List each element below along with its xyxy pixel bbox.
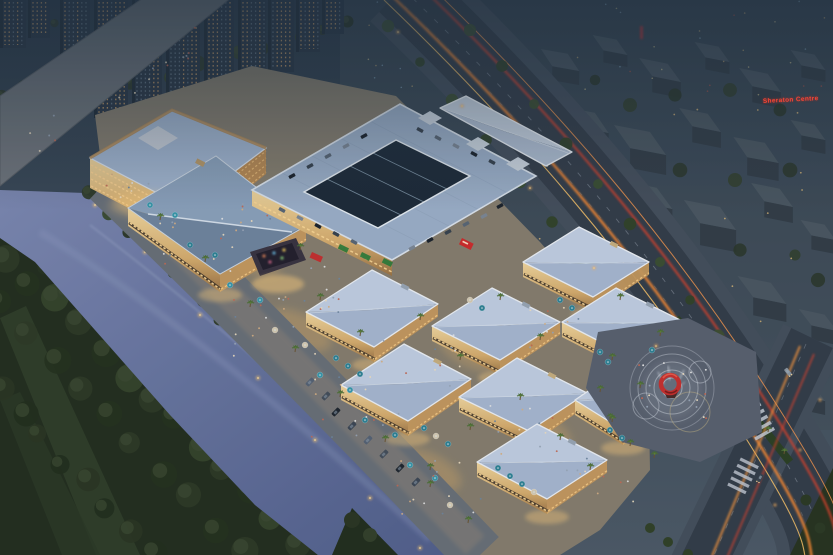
rendering-stage: Sheraton Centre Sheraton Centre <box>0 0 833 555</box>
blue-grade <box>0 0 833 555</box>
aerial-mall-rendering: Sheraton Centre Sheraton Centre <box>0 0 833 555</box>
